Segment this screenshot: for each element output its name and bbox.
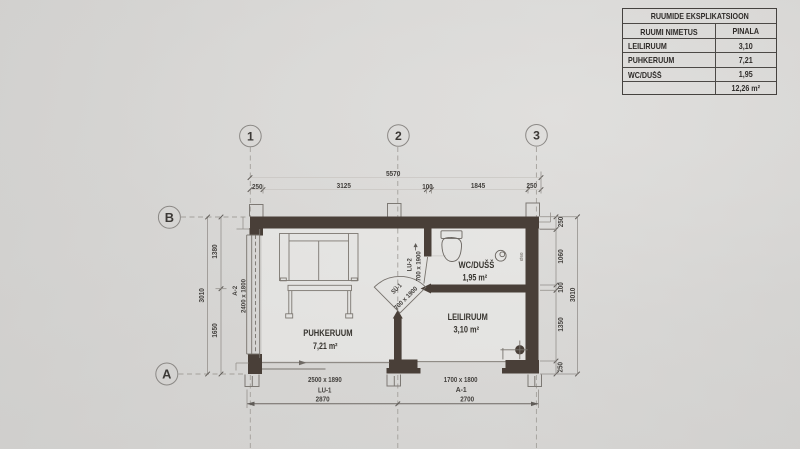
svg-text:Ø50: Ø50 (519, 252, 524, 261)
svg-text:2870: 2870 (316, 396, 330, 403)
svg-text:LEILIRUUM: LEILIRUUM (448, 312, 488, 322)
svg-text:A-2: A-2 (232, 285, 239, 295)
svg-text:WC/DUŠŠ: WC/DUŠŠ (459, 259, 495, 270)
svg-text:250: 250 (558, 217, 565, 228)
svg-text:3010: 3010 (570, 288, 577, 302)
svg-text:250: 250 (557, 362, 564, 373)
svg-text:3,10 m²: 3,10 m² (454, 324, 480, 334)
svg-text:100: 100 (422, 184, 433, 191)
svg-text:1,95 m²: 1,95 m² (462, 272, 487, 282)
svg-text:PUHKERUUM: PUHKERUUM (303, 328, 352, 338)
svg-text:1380: 1380 (212, 244, 219, 258)
svg-text:2: 2 (395, 129, 402, 143)
svg-text:1350: 1350 (558, 317, 565, 331)
svg-text:2700: 2700 (460, 396, 474, 403)
svg-text:5570: 5570 (386, 171, 401, 178)
svg-text:100: 100 (558, 282, 565, 293)
svg-text:LU-2: LU-2 (407, 258, 414, 271)
svg-text:1700 x 1800: 1700 x 1800 (444, 377, 478, 384)
svg-text:3010: 3010 (199, 288, 206, 302)
svg-text:1845: 1845 (471, 183, 485, 190)
svg-text:250: 250 (527, 183, 538, 190)
svg-text:700 x 1900: 700 x 1900 (416, 251, 423, 281)
svg-text:1060: 1060 (558, 249, 565, 263)
svg-text:1650: 1650 (212, 323, 219, 337)
svg-text:B: B (165, 210, 174, 225)
svg-text:LU-1: LU-1 (318, 387, 332, 394)
svg-text:3: 3 (533, 129, 540, 143)
svg-text:3125: 3125 (337, 183, 351, 190)
svg-text:7,21 m²: 7,21 m² (313, 341, 338, 351)
svg-text:250: 250 (252, 184, 263, 191)
svg-text:1: 1 (247, 129, 254, 143)
svg-text:2400 x 1800: 2400 x 1800 (241, 279, 248, 313)
svg-text:2500 x 1890: 2500 x 1890 (308, 377, 342, 384)
svg-text:A: A (162, 367, 171, 382)
svg-text:A-1: A-1 (456, 387, 467, 394)
